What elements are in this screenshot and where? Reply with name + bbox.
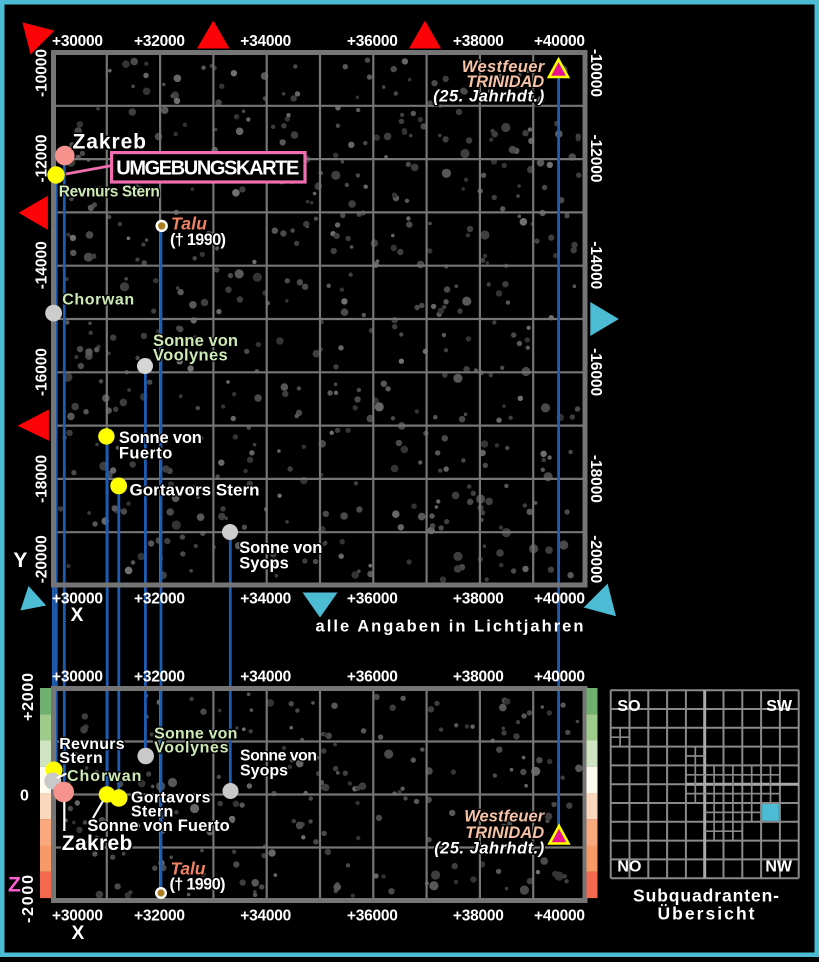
svg-text:X: X bbox=[72, 923, 85, 944]
svg-text:0: 0 bbox=[20, 788, 29, 805]
svg-text:Revnurs Stern: Revnurs Stern bbox=[59, 184, 160, 201]
svg-text:+30000: +30000 bbox=[52, 669, 103, 686]
svg-text:+2000: +2000 bbox=[20, 673, 37, 721]
svg-text:-14000: -14000 bbox=[34, 241, 51, 289]
svg-text:+32000: +32000 bbox=[134, 591, 185, 608]
svg-text:-14000: -14000 bbox=[587, 241, 604, 289]
svg-text:Chorwan: Chorwan bbox=[67, 768, 141, 785]
svg-text:+38000: +38000 bbox=[453, 33, 504, 50]
svg-text:+32000: +32000 bbox=[134, 908, 185, 925]
svg-text:X: X bbox=[71, 605, 84, 626]
svg-text:+32000: +32000 bbox=[134, 669, 185, 686]
svg-text:+34000: +34000 bbox=[240, 669, 291, 686]
svg-text:-12000: -12000 bbox=[587, 135, 604, 183]
svg-text:Fuerto: Fuerto bbox=[119, 445, 172, 463]
svg-text:+38000: +38000 bbox=[453, 591, 504, 608]
svg-text:+34000: +34000 bbox=[240, 908, 291, 925]
svg-text:-18000: -18000 bbox=[587, 455, 604, 503]
svg-text:+40000: +40000 bbox=[534, 33, 585, 50]
svg-text:-10000: -10000 bbox=[34, 49, 51, 97]
svg-text:+40000: +40000 bbox=[534, 908, 585, 925]
svg-text:+38000: +38000 bbox=[453, 669, 504, 686]
svg-text:Syops: Syops bbox=[239, 555, 289, 573]
svg-text:-2000: -2000 bbox=[20, 875, 37, 923]
svg-text:+32000: +32000 bbox=[134, 33, 185, 50]
svg-text:-20000: -20000 bbox=[34, 535, 51, 583]
svg-text:Gortavors Stern: Gortavors Stern bbox=[130, 481, 260, 500]
svg-text:NO: NO bbox=[617, 858, 641, 875]
svg-text:Syops: Syops bbox=[240, 762, 288, 779]
svg-text:Voolynes: Voolynes bbox=[154, 740, 228, 757]
svg-text:-20000: -20000 bbox=[587, 535, 604, 583]
svg-text:Voolynes: Voolynes bbox=[153, 347, 228, 365]
svg-text:Y: Y bbox=[13, 549, 27, 572]
svg-text:-10000: -10000 bbox=[587, 49, 604, 97]
svg-text:Subquadranten-: Subquadranten- bbox=[633, 885, 779, 905]
svg-text:Übersicht: Übersicht bbox=[658, 903, 755, 923]
svg-text:SO: SO bbox=[617, 698, 640, 715]
svg-text:+30000: +30000 bbox=[52, 33, 103, 50]
svg-text:Stern: Stern bbox=[59, 750, 103, 767]
svg-text:+36000: +36000 bbox=[347, 669, 398, 686]
svg-text:+30000: +30000 bbox=[52, 908, 103, 925]
svg-text:Westfeuer: Westfeuer bbox=[464, 807, 546, 825]
svg-text:(25. Jahrhdt.): (25. Jahrhdt.) bbox=[433, 87, 545, 105]
svg-text:NW: NW bbox=[765, 858, 793, 875]
svg-text:UMGEBUNGSKARTE: UMGEBUNGSKARTE bbox=[116, 158, 299, 180]
svg-text:+38000: +38000 bbox=[453, 908, 504, 925]
svg-text:+40000: +40000 bbox=[534, 669, 585, 686]
svg-text:+36000: +36000 bbox=[347, 591, 398, 608]
svg-text:Z: Z bbox=[8, 874, 21, 897]
svg-text:-18000: -18000 bbox=[34, 455, 51, 503]
svg-text:Zakreb: Zakreb bbox=[73, 131, 147, 154]
svg-text:+36000: +36000 bbox=[347, 33, 398, 50]
svg-text:Chorwan: Chorwan bbox=[62, 291, 134, 308]
svg-text:-16000: -16000 bbox=[34, 348, 51, 396]
svg-text:Zakreb: Zakreb bbox=[62, 832, 133, 855]
svg-text:+34000: +34000 bbox=[240, 33, 291, 50]
svg-text:+36000: +36000 bbox=[347, 908, 398, 925]
svg-text:+34000: +34000 bbox=[240, 591, 291, 608]
svg-text:+40000: +40000 bbox=[534, 591, 585, 608]
svg-text:(25. Jahrhdt.): (25. Jahrhdt.) bbox=[434, 840, 545, 858]
svg-text:Stern: Stern bbox=[131, 804, 173, 821]
svg-text:(† 1990): († 1990) bbox=[170, 231, 226, 249]
svg-text:-16000: -16000 bbox=[587, 348, 604, 396]
svg-text:SW: SW bbox=[766, 698, 793, 715]
svg-text:(† 1990): († 1990) bbox=[170, 876, 226, 894]
